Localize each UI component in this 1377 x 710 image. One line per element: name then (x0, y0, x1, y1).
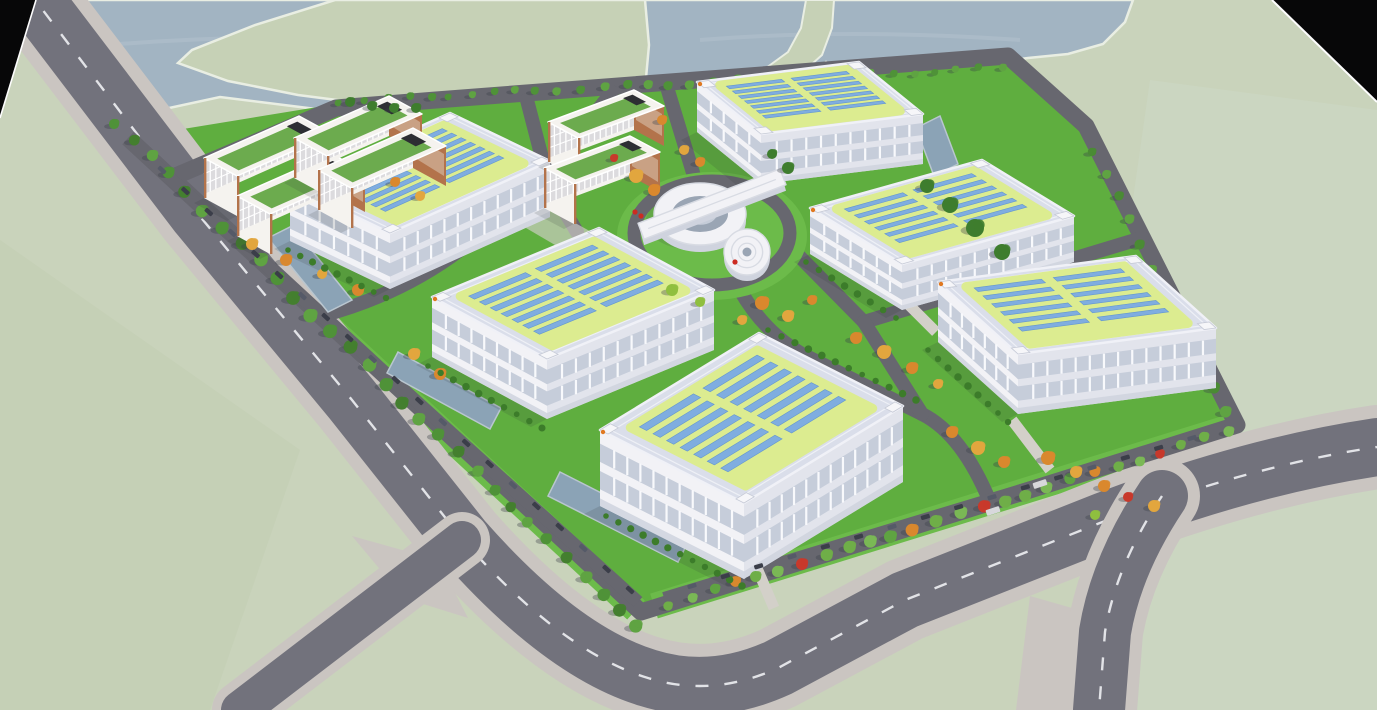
roof-access-marker (939, 282, 943, 286)
roof-access-marker (433, 297, 437, 301)
flower-bed (632, 209, 637, 214)
flower-bed (638, 213, 643, 218)
flower-bed (732, 259, 737, 264)
industrial-park-aerial-rendering (0, 0, 1377, 710)
roof-access-marker (601, 430, 605, 434)
roof-access-marker (698, 82, 702, 86)
roof-access-marker (811, 208, 815, 212)
rendering-canvas (0, 0, 1377, 710)
